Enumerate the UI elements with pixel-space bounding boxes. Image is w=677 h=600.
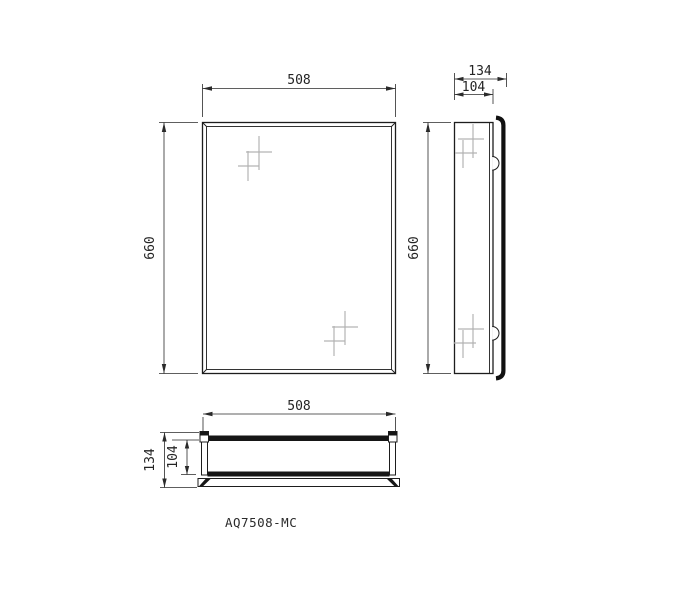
- sparkle-icon: [238, 136, 272, 181]
- dim-side-body-depth: 104: [455, 80, 494, 104]
- plan-base-trim: [198, 479, 400, 487]
- sparkle-icon: [324, 311, 358, 356]
- hinge-icon: [492, 327, 499, 341]
- arrowhead-top-icon: [185, 440, 189, 449]
- arrowhead-top-icon: [162, 433, 166, 442]
- arrowhead-left-icon: [203, 412, 213, 416]
- extension-lines: [203, 84, 396, 117]
- plan-view: [198, 432, 400, 487]
- front-view-outer-frame: [203, 123, 396, 374]
- sparkle-icon: [454, 314, 484, 358]
- side-total-depth-value: 134: [468, 64, 492, 79]
- model-code-label: AQ7508-MC: [225, 515, 297, 530]
- arrowhead-right-icon: [386, 412, 396, 416]
- dim-front-height: 660: [143, 123, 198, 374]
- side-height-value: 660: [407, 236, 422, 259]
- plan-door-slab: [209, 436, 389, 442]
- plan-body-depth-value: 104: [166, 445, 181, 469]
- arrowhead-left-icon: [203, 86, 213, 90]
- dim-plan-width: 508: [203, 399, 396, 431]
- front-view: [203, 123, 396, 374]
- dim-plan-body-depth: 104: [166, 440, 199, 475]
- arrowhead-bottom-icon: [162, 479, 166, 488]
- plan-door-endcap-fill: [389, 432, 398, 436]
- plan-width-value: 508: [287, 399, 310, 414]
- arrowhead-bottom-icon: [185, 466, 189, 475]
- technical-drawing-canvas: 508 660 660 13: [0, 0, 677, 600]
- extension-lines: [203, 417, 396, 431]
- dim-front-width: 508: [203, 73, 396, 117]
- plan-back-panel: [208, 472, 390, 477]
- plan-total-depth-value: 134: [143, 448, 158, 472]
- plan-right-wall: [390, 442, 396, 475]
- sparkle-icon: [455, 124, 484, 168]
- arrowhead-right-icon: [498, 77, 507, 81]
- arrowhead-top-icon: [426, 123, 430, 133]
- arrowhead-top-icon: [162, 123, 166, 133]
- extension-lines: [423, 123, 451, 374]
- arrowhead-right-icon: [484, 92, 493, 96]
- hinge-icon: [492, 157, 499, 171]
- front-view-inner-frame: [207, 127, 392, 370]
- front-height-value: 660: [143, 236, 158, 259]
- extension-lines: [159, 123, 198, 374]
- plan-left-wall: [202, 442, 208, 475]
- arrowhead-bottom-icon: [426, 364, 430, 374]
- side-body-depth-value: 104: [462, 80, 486, 95]
- mirror-door-profile: [496, 118, 503, 379]
- dim-side-height: 660: [407, 123, 451, 374]
- side-view-body: [455, 123, 494, 374]
- plan-door-endcap-fill: [200, 432, 209, 436]
- frame-miter-lines: [203, 123, 396, 374]
- arrowhead-bottom-icon: [162, 364, 166, 374]
- arrowhead-right-icon: [386, 86, 396, 90]
- front-width-value: 508: [287, 73, 310, 88]
- side-view: [454, 118, 503, 379]
